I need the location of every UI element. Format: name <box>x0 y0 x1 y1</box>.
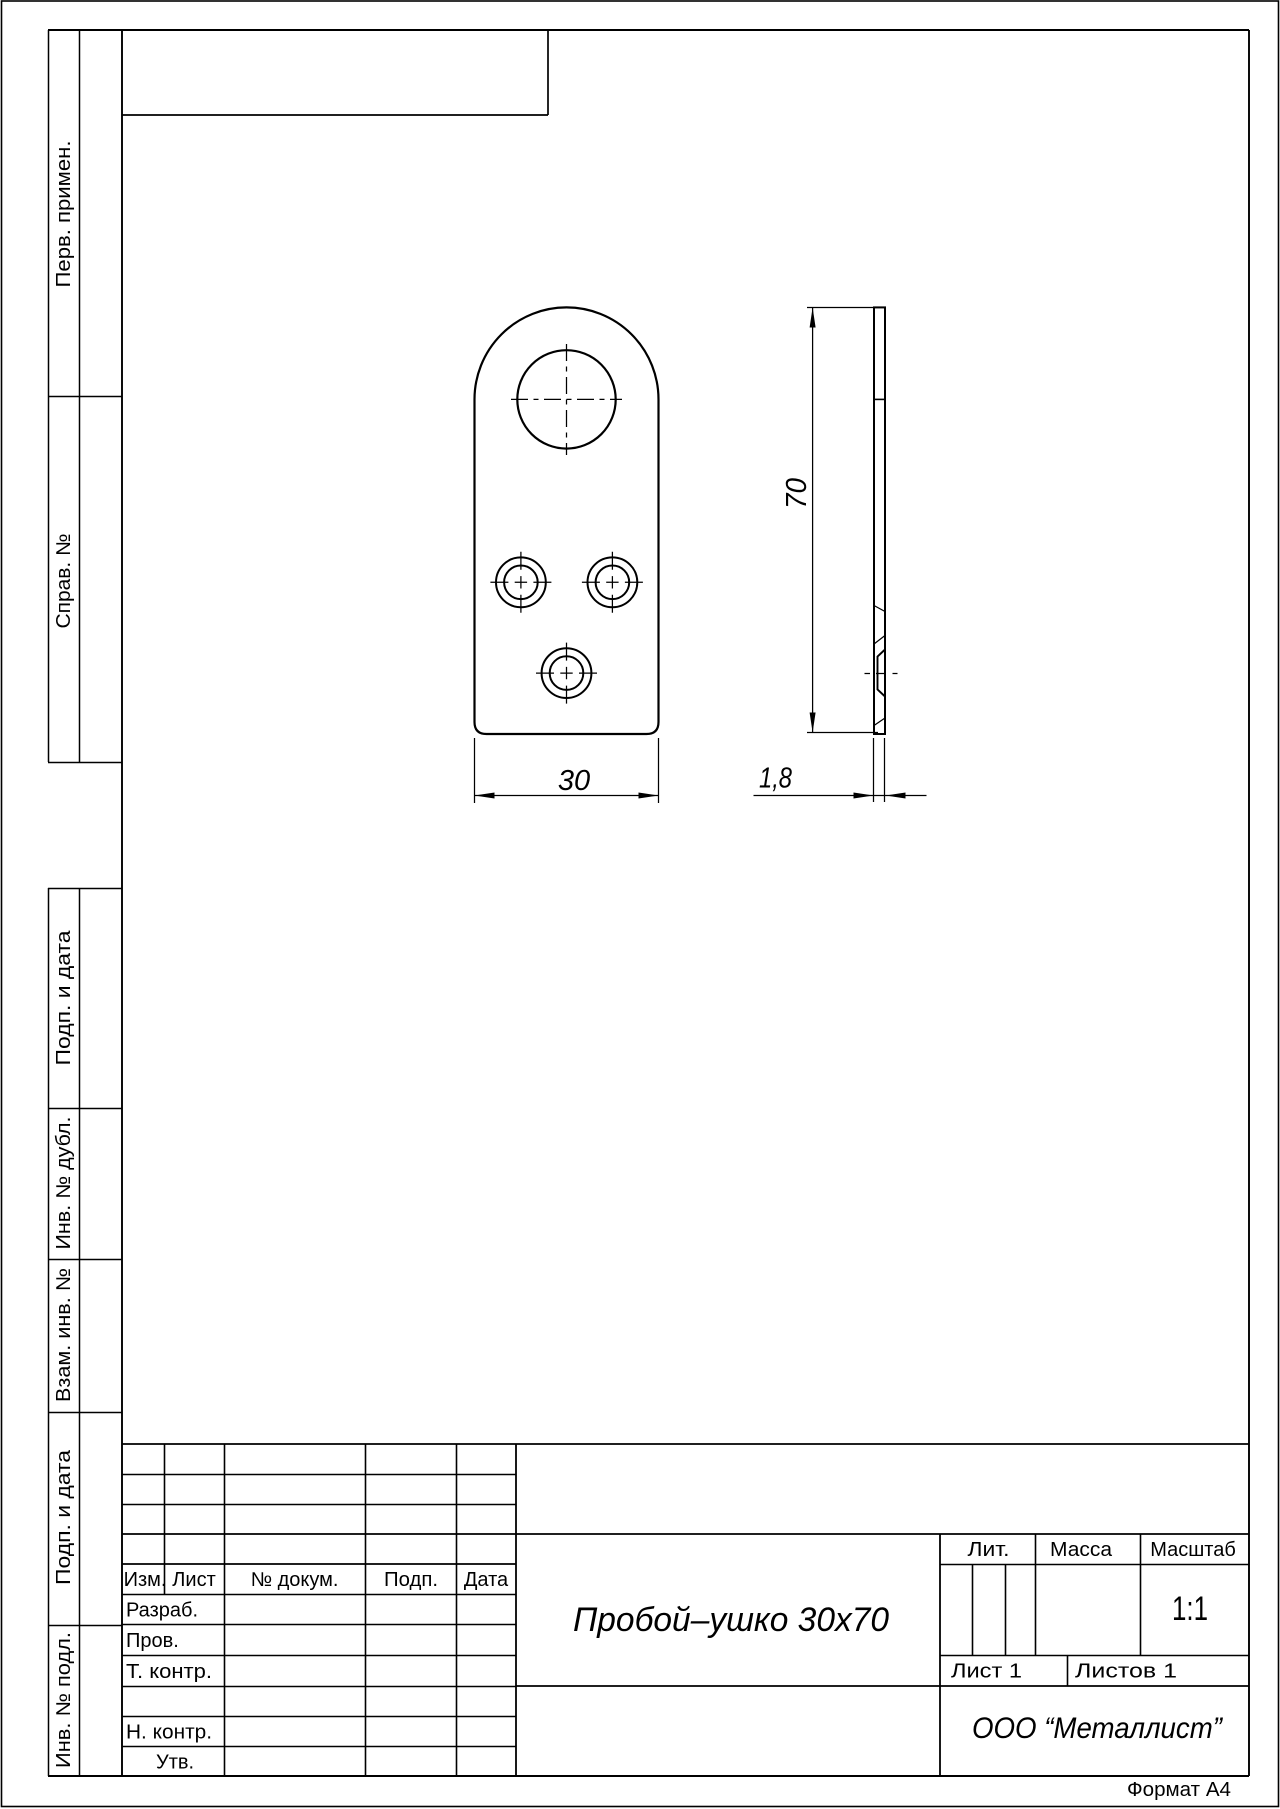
svg-text:1,8: 1,8 <box>759 763 792 795</box>
svg-text:Инв. № подл.: Инв. № подл. <box>53 1632 75 1768</box>
svg-text:Подп. и дата: Подп. и дата <box>53 929 75 1065</box>
svg-text:Т. контр.: Т. контр. <box>126 1661 212 1683</box>
svg-text:Изм.: Изм. <box>124 1569 167 1591</box>
svg-text:Пробой–ушко 30х70: Пробой–ушко 30х70 <box>573 1601 889 1639</box>
svg-text:Листов 1: Листов 1 <box>1075 1661 1177 1683</box>
svg-text:Формат А4: Формат А4 <box>1127 1779 1231 1801</box>
svg-text:Перв. примен.: Перв. примен. <box>53 141 75 288</box>
svg-text:Н. контр.: Н. контр. <box>126 1722 212 1744</box>
svg-text:Справ. №: Справ. № <box>53 534 75 629</box>
svg-text:Инв. № дубл.: Инв. № дубл. <box>53 1117 75 1250</box>
svg-text:70: 70 <box>781 478 813 509</box>
svg-text:ООО “Металлист”: ООО “Металлист” <box>972 1712 1224 1745</box>
svg-text:Утв.: Утв. <box>156 1752 194 1774</box>
svg-text:Разраб.: Разраб. <box>126 1600 198 1622</box>
svg-text:Подп.: Подп. <box>384 1569 438 1591</box>
svg-text:№ докум.: № докум. <box>251 1569 339 1591</box>
svg-text:Дата: Дата <box>464 1569 509 1591</box>
svg-text:30: 30 <box>558 765 590 797</box>
svg-text:Взам. инв. №: Взам. инв. № <box>53 1268 75 1402</box>
svg-text:Лит.: Лит. <box>968 1539 1010 1561</box>
svg-text:1:1: 1:1 <box>1172 1590 1208 1628</box>
svg-text:Лист 1: Лист 1 <box>951 1661 1022 1683</box>
svg-text:Лист: Лист <box>172 1569 215 1591</box>
svg-text:Пров.: Пров. <box>126 1630 179 1652</box>
svg-text:Подп. и дата: Подп. и дата <box>53 1449 75 1585</box>
svg-text:Масса: Масса <box>1050 1539 1113 1561</box>
svg-text:Масштаб: Масштаб <box>1150 1539 1236 1561</box>
